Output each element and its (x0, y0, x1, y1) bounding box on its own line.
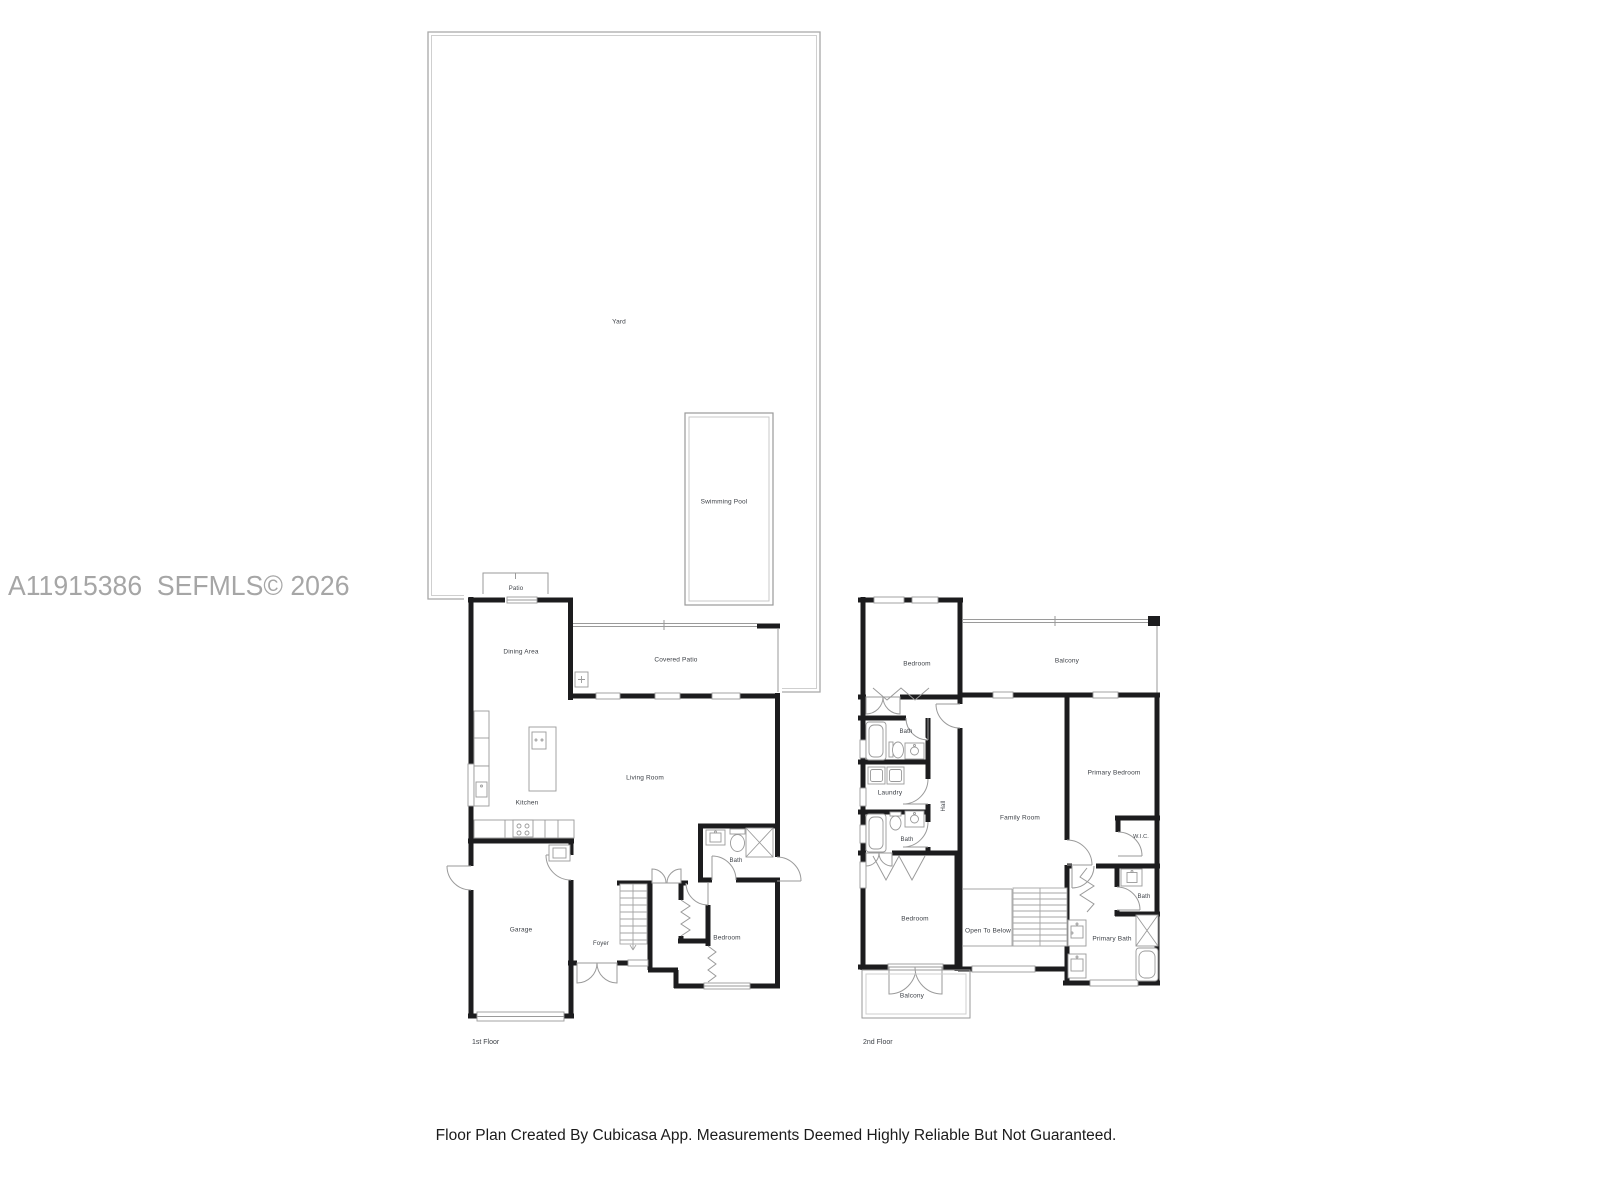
room-label-primary-bedroom: Primary Bedroom (1088, 770, 1141, 777)
room-label-balcony-bottom: Balcony (900, 993, 924, 1000)
room-label-bath-right: Bath (1138, 894, 1151, 900)
room-label-wic: W.I.C. (1133, 834, 1149, 840)
swimming-pool-outline (685, 413, 773, 605)
room-label-living-room: Living Room (626, 775, 664, 782)
room-label-patio: Patio (509, 586, 523, 592)
room-label-bedroom-f1: Bedroom (713, 935, 740, 942)
room-label-bath-mid: Bath (901, 837, 914, 843)
mls-watermark: A11915386 SEFMLS© 2026 (8, 570, 349, 602)
balcony-top-corner (1148, 616, 1160, 626)
room-label-bath-top: Bath (900, 729, 913, 735)
room-label-yard: Yard (612, 319, 626, 326)
room-label-garage: Garage (510, 927, 533, 934)
second-floor-stairs (1013, 888, 1067, 946)
room-label-family-room: Family Room (1000, 815, 1040, 822)
room-label-open-to-below: Open To Below (965, 928, 1011, 935)
room-label-bedroom-f2-bottom: Bedroom (901, 916, 928, 923)
room-label-laundry: Laundry (878, 790, 903, 797)
first-floor-label: 1st Floor (472, 1039, 499, 1046)
room-label-foyer: Foyer (593, 941, 609, 947)
room-label-bath-f1: Bath (730, 858, 743, 864)
first-floor-stairs (620, 884, 647, 950)
room-label-dining-area: Dining Area (503, 649, 538, 656)
room-label-bedroom-f2-top: Bedroom (903, 661, 930, 668)
caption-text: Floor Plan Created By Cubicasa App. Meas… (436, 1127, 1117, 1145)
room-label-covered-patio: Covered Patio (654, 657, 697, 664)
floorplan-canvas: Yard Swimming Pool Patio Dining Area Cov… (0, 0, 1600, 1200)
room-label-primary-bath: Primary Bath (1092, 936, 1131, 943)
room-label-hall: Hall (941, 801, 947, 812)
room-label-swimming-pool: Swimming Pool (701, 499, 748, 506)
room-label-balcony-top: Balcony (1055, 658, 1079, 665)
second-floor-label: 2nd Floor (863, 1039, 893, 1046)
room-label-kitchen: Kitchen (516, 800, 539, 807)
